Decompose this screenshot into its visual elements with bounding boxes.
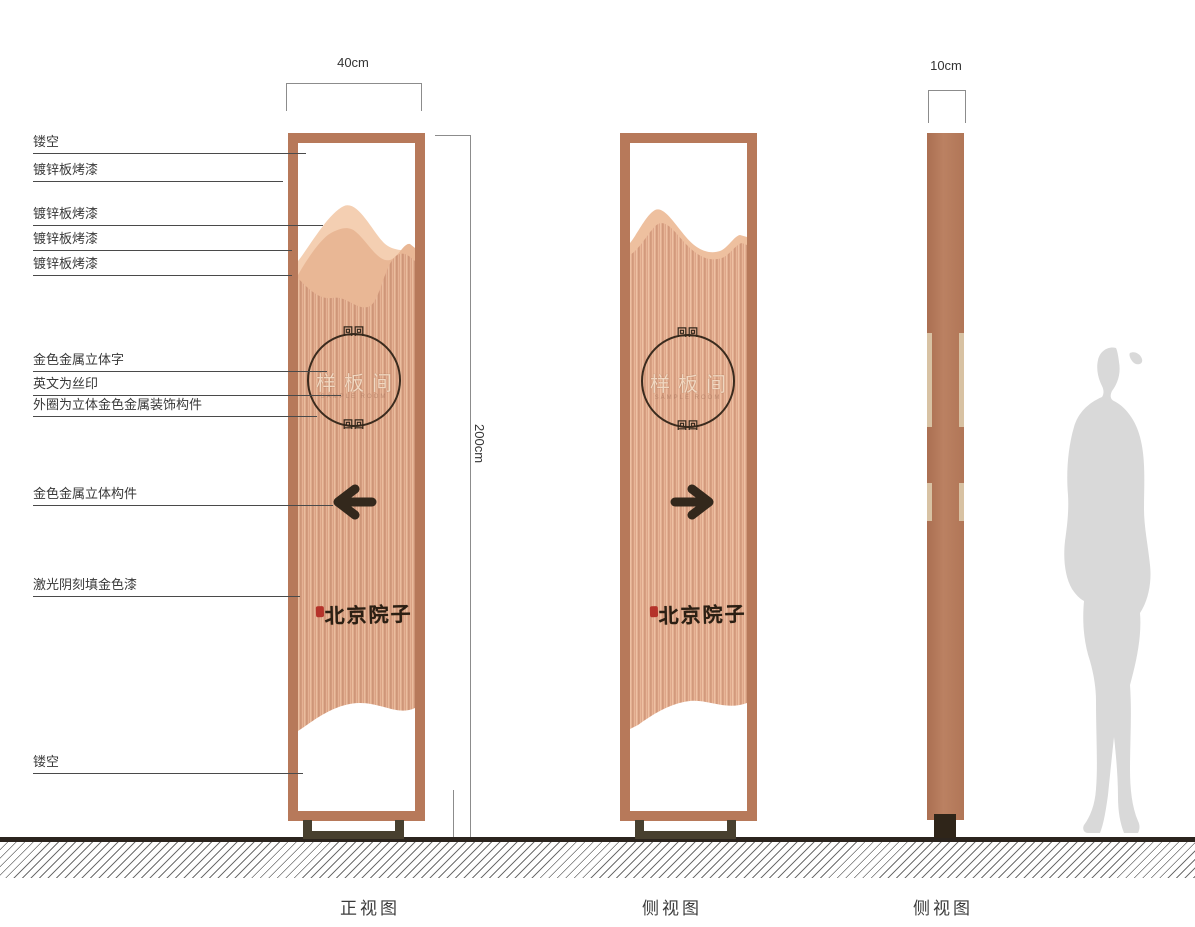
callout-label: 金色金属立体构件 (33, 483, 137, 502)
dimension-40cm-label: 40cm (286, 55, 420, 70)
callout-label: 镀锌板烤漆 (33, 228, 98, 247)
english-subtext: SAMPLE ROOM (643, 395, 733, 401)
callout-outer-ring-decoration: 外圈为立体金色金属装饰构件 (33, 393, 317, 417)
callout-label: 镀锌板烤漆 (33, 159, 98, 178)
design-sheet: 40cm 10cm 200cm 回回 回回 样板间 SAMPLE (0, 0, 1195, 927)
arrow-left-icon (331, 483, 377, 521)
view-label-side-2: 侧视图 (883, 894, 1003, 919)
pillar-front-base-plate (303, 831, 404, 839)
callout-label: 外圈为立体金色金属装饰构件 (33, 394, 202, 413)
callout-laser-engraved-gold: 激光阴刻填金色漆 (33, 573, 300, 597)
profile-inset-strip (927, 333, 932, 427)
mountain-panel-graphic (630, 143, 747, 811)
human-silhouette (1038, 345, 1168, 838)
dimension-40cm-bracket (286, 83, 422, 111)
circle-ornament-top-icon: 回回 (658, 329, 718, 339)
brand-calligraphy: 北京院子 (308, 598, 421, 630)
circle-ornament-bottom-icon: 回回 (324, 421, 384, 431)
view-label-front: 正视图 (310, 894, 430, 919)
ground-line (0, 837, 1195, 842)
dimension-200cm-extension-line (453, 790, 454, 837)
brand-text: 北京院子 (324, 602, 413, 628)
brand-text: 北京院子 (658, 602, 747, 628)
circle-ornament-top-icon: 回回 (324, 328, 384, 338)
dimension-10cm-label: 10cm (910, 58, 982, 73)
profile-inset-strip (959, 483, 964, 521)
dimension-10cm-bracket (928, 90, 966, 123)
callout-galvanized-2: 镀锌板烤漆 (33, 202, 323, 226)
dimension-200cm-tick (435, 135, 470, 136)
callout-label: 激光阴刻填金色漆 (33, 574, 137, 593)
callout-gold-3d-component: 金色金属立体构件 (33, 482, 333, 506)
circle-label: 样板间 (633, 368, 743, 397)
pillar-side-base-plate (635, 831, 736, 839)
ground-hatch (0, 842, 1195, 878)
callout-gold-3d-letters: 金色金属立体字 (33, 348, 327, 372)
dimension-200cm-line (470, 135, 471, 837)
pillar-profile-base (934, 814, 956, 838)
callout-galvanized-3: 镀锌板烤漆 (33, 227, 292, 251)
view-label-side-1: 侧视图 (612, 894, 732, 919)
callout-label: 英文为丝印 (33, 373, 98, 392)
brand-seal-icon (315, 606, 323, 617)
profile-inset-strip (959, 333, 964, 427)
callout-label: 镀锌板烤漆 (33, 203, 98, 222)
pillar-front-view (288, 133, 425, 821)
callout-hollow-top: 镂空 (33, 130, 306, 154)
brand-calligraphy: 北京院子 (642, 598, 755, 630)
pillar-side-view (620, 133, 757, 821)
profile-inset-strip (927, 483, 932, 521)
callout-label: 镂空 (33, 751, 59, 770)
callout-galvanized-4: 镀锌板烤漆 (33, 252, 292, 276)
callout-label: 镀锌板烤漆 (33, 253, 98, 272)
dimension-200cm-label: 200cm (472, 424, 487, 463)
arrow-right-icon (670, 483, 716, 521)
callout-label: 金色金属立体字 (33, 349, 124, 368)
callout-galvanized-1: 镀锌板烤漆 (33, 158, 283, 182)
brand-seal-icon (649, 606, 657, 617)
circle-ornament-bottom-icon: 回回 (658, 422, 718, 432)
callout-hollow-bottom: 镂空 (33, 750, 303, 774)
pillar-profile-view (927, 133, 964, 820)
mountain-panel-graphic (298, 143, 415, 811)
callout-label: 镂空 (33, 131, 59, 150)
